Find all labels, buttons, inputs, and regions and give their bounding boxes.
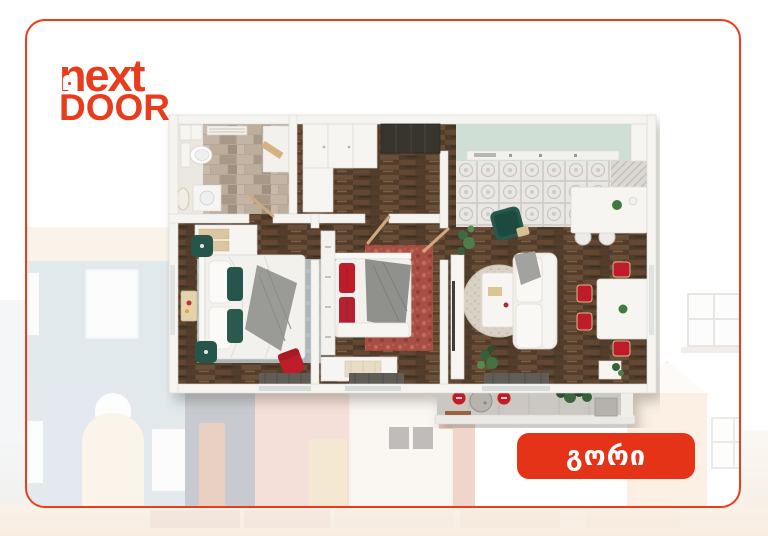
toilet-tank [181,143,190,167]
house-window [25,421,43,483]
promo-card: next DOOR [25,19,741,508]
outside-house-strip [0,300,25,505]
sketch-flowerbox [681,347,741,353]
house-window [152,429,188,491]
plate [629,197,637,205]
cooktop [474,153,496,157]
dining-chair [613,262,630,277]
floorplan-image [166,112,660,428]
house-window [85,269,139,339]
hall-cabinet [303,168,333,212]
outside-house-strip [585,510,680,528]
outside-house-strip [743,430,768,508]
logo-door-icon [63,75,72,90]
nextdoor-logo: next DOOR [59,53,170,126]
sketch-window-bar [711,441,741,443]
sketch-window-bar [687,318,741,320]
towel-rack [207,126,247,135]
bed2-gray-blanket [365,259,411,329]
balcony-ac-unit [595,398,617,416]
wall-tray [181,291,197,321]
dining-chair [577,313,592,330]
outside-house-strip [460,510,560,528]
door-mats [259,373,549,384]
floorplan-svg [166,112,660,428]
table-plant [619,305,628,314]
outside-house-strip [150,510,240,528]
sketch-window-bar [713,293,715,347]
mirror [177,188,189,210]
sketch-window-bar [733,417,735,469]
fridge [631,124,647,161]
terracotta-house [453,419,475,508]
dining-chair [613,341,630,356]
outside-house-strip [334,510,454,528]
dining-chair [577,285,592,302]
sink [200,191,214,205]
house-window [389,427,409,449]
outside-house-strip [244,510,330,528]
bed2-headboard [335,253,411,259]
tv [452,281,455,351]
hall-wardrobe [303,124,377,168]
kitchen-island [571,187,647,233]
house-door [199,423,225,508]
coffee-table [482,273,514,327]
book [488,287,502,296]
house-window [413,427,433,449]
house-window [25,273,39,335]
pillow-green [227,267,243,301]
island-plant [612,200,622,210]
pillow-green [227,309,243,343]
house-door [82,413,144,508]
house-door [309,439,347,508]
location-button[interactable]: გორი [517,433,695,479]
sofa [513,251,557,349]
balcony-edge-wood [445,411,471,415]
sketch-window [711,417,741,469]
logo-line2: DOOR [59,89,170,126]
